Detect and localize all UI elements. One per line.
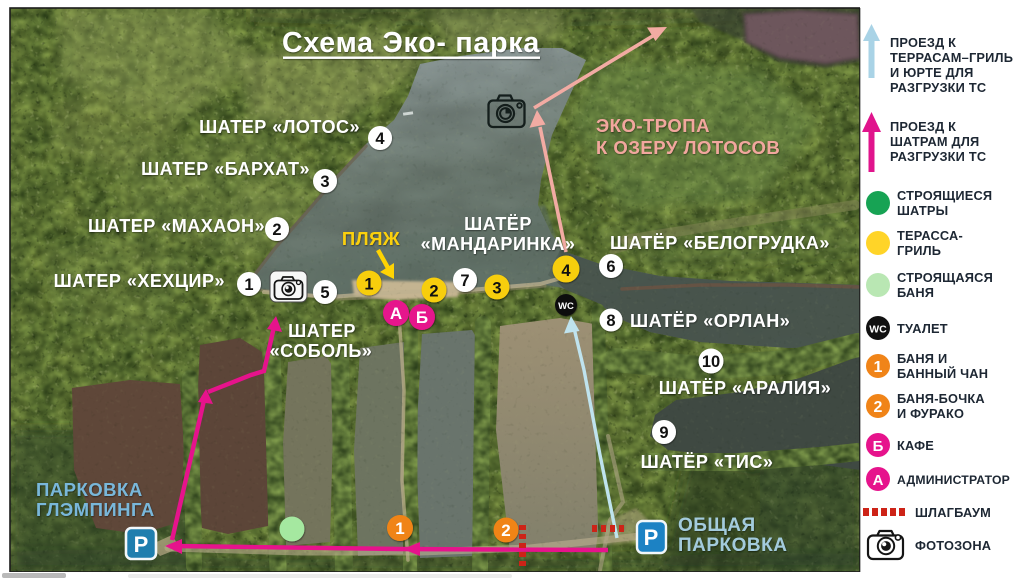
- svg-text:3: 3: [320, 173, 329, 191]
- svg-text:БАННЫЙ ЧАН: БАННЫЙ ЧАН: [897, 366, 988, 381]
- svg-text:ШАТЁР: ШАТЁР: [464, 214, 532, 234]
- svg-text:А: А: [873, 472, 884, 489]
- svg-text:ШАТЁР «АРАЛИЯ»: ШАТЁР «АРАЛИЯ»: [659, 378, 831, 398]
- svg-text:7: 7: [460, 272, 469, 290]
- svg-text:АДМИНИСТРАТОР: АДМИНИСТРАТОР: [897, 473, 1010, 487]
- svg-text:WC: WC: [869, 324, 887, 336]
- svg-text:«СОБОЛЬ»: «СОБОЛЬ»: [270, 341, 373, 361]
- svg-text:10: 10: [702, 353, 720, 371]
- svg-text:ШАТРАМ ДЛЯ: ШАТРАМ ДЛЯ: [890, 134, 979, 149]
- svg-text:2: 2: [874, 399, 883, 416]
- svg-text:ГРИЛЬ: ГРИЛЬ: [897, 243, 941, 258]
- svg-text:ПАРКОВКА: ПАРКОВКА: [678, 535, 787, 556]
- svg-text:СТРОЯЩИЕСЯ: СТРОЯЩИЕСЯ: [897, 188, 992, 203]
- svg-text:2: 2: [272, 221, 281, 239]
- svg-text:Б: Б: [873, 438, 884, 455]
- svg-text:ШАТЁР «БЕЛОГРУДКА»: ШАТЁР «БЕЛОГРУДКА»: [610, 233, 830, 253]
- svg-text:ПРОЕЗД К: ПРОЕЗД К: [890, 119, 956, 134]
- svg-text:Схема Эко- парка: Схема Эко- парка: [282, 27, 540, 59]
- svg-text:ШАТЁР «ОРЛАН»: ШАТЁР «ОРЛАН»: [630, 311, 790, 331]
- svg-text:ШАТЕР «МАХАОН»: ШАТЕР «МАХАОН»: [88, 216, 265, 236]
- svg-text:ФОТОЗОНА: ФОТОЗОНА: [915, 538, 991, 553]
- svg-text:ПЛЯЖ: ПЛЯЖ: [342, 228, 400, 249]
- svg-text:ЭКО-ТРОПА: ЭКО-ТРОПА: [596, 115, 710, 136]
- svg-text:4: 4: [561, 262, 571, 280]
- svg-text:1: 1: [244, 276, 253, 294]
- svg-text:«МАНДАРИНКА»: «МАНДАРИНКА»: [421, 234, 576, 254]
- svg-text:ТЕРРАСАМ–ГРИЛЬ: ТЕРРАСАМ–ГРИЛЬ: [890, 50, 1013, 65]
- svg-text:РАЗГРУЗКИ ТС: РАЗГРУЗКИ ТС: [890, 149, 986, 164]
- svg-text:Б: Б: [416, 308, 428, 327]
- svg-text:ПАРКОВКА: ПАРКОВКА: [36, 479, 143, 500]
- svg-text:WC: WC: [558, 301, 574, 312]
- svg-text:БАНЯ: БАНЯ: [897, 285, 934, 300]
- svg-text:3: 3: [492, 280, 501, 298]
- svg-text:КАФЕ: КАФЕ: [897, 438, 934, 453]
- svg-text:ШАТЕР «ЛОТОС»: ШАТЕР «ЛОТОС»: [199, 117, 360, 137]
- svg-text:4: 4: [375, 130, 385, 148]
- svg-text:P: P: [134, 532, 149, 557]
- svg-text:ШЛАГБАУМ: ШЛАГБАУМ: [915, 505, 991, 520]
- svg-text:РАЗГРУЗКИ ТС: РАЗГРУЗКИ ТС: [890, 80, 986, 95]
- svg-text:ШАТЕР «ХЕХЦИР»: ШАТЕР «ХЕХЦИР»: [54, 271, 225, 291]
- svg-text:СТРОЯЩАЯСЯ: СТРОЯЩАЯСЯ: [897, 270, 993, 285]
- svg-text:ОБЩАЯ: ОБЩАЯ: [678, 515, 756, 536]
- svg-text:ШАТЁР «ТИС»: ШАТЁР «ТИС»: [641, 452, 774, 472]
- svg-text:К ОЗЕРУ ЛОТОСОВ: К ОЗЕРУ ЛОТОСОВ: [596, 137, 780, 158]
- svg-text:1: 1: [395, 519, 404, 538]
- svg-text:ТУАЛЕТ: ТУАЛЕТ: [897, 321, 948, 336]
- svg-text:8: 8: [606, 312, 615, 330]
- svg-text:2: 2: [429, 283, 438, 301]
- svg-text:БАНЯ И: БАНЯ И: [897, 351, 947, 366]
- svg-text:6: 6: [606, 258, 615, 276]
- svg-text:А: А: [390, 304, 402, 323]
- svg-text:1: 1: [874, 359, 883, 376]
- svg-text:5: 5: [320, 284, 329, 302]
- svg-text:БАНЯ-БОЧКА: БАНЯ-БОЧКА: [897, 391, 985, 406]
- svg-text:ШАТЕР: ШАТЕР: [288, 321, 356, 341]
- svg-text:ТЕРАССА-: ТЕРАССА-: [897, 228, 963, 243]
- svg-text:9: 9: [659, 424, 668, 442]
- svg-text:И ЮРТЕ ДЛЯ: И ЮРТЕ ДЛЯ: [890, 65, 974, 80]
- svg-text:ПРОЕЗД К: ПРОЕЗД К: [890, 35, 956, 50]
- svg-text:ШАТРЫ: ШАТРЫ: [897, 203, 948, 218]
- svg-text:И ФУРАКО: И ФУРАКО: [897, 406, 964, 421]
- svg-text:2: 2: [501, 521, 510, 540]
- svg-text:ГЛЭМПИНГА: ГЛЭМПИНГА: [36, 499, 155, 520]
- svg-text:ШАТЕР «БАРХАТ»: ШАТЕР «БАРХАТ»: [141, 159, 310, 179]
- svg-text:1: 1: [364, 276, 373, 294]
- svg-text:P: P: [644, 525, 659, 550]
